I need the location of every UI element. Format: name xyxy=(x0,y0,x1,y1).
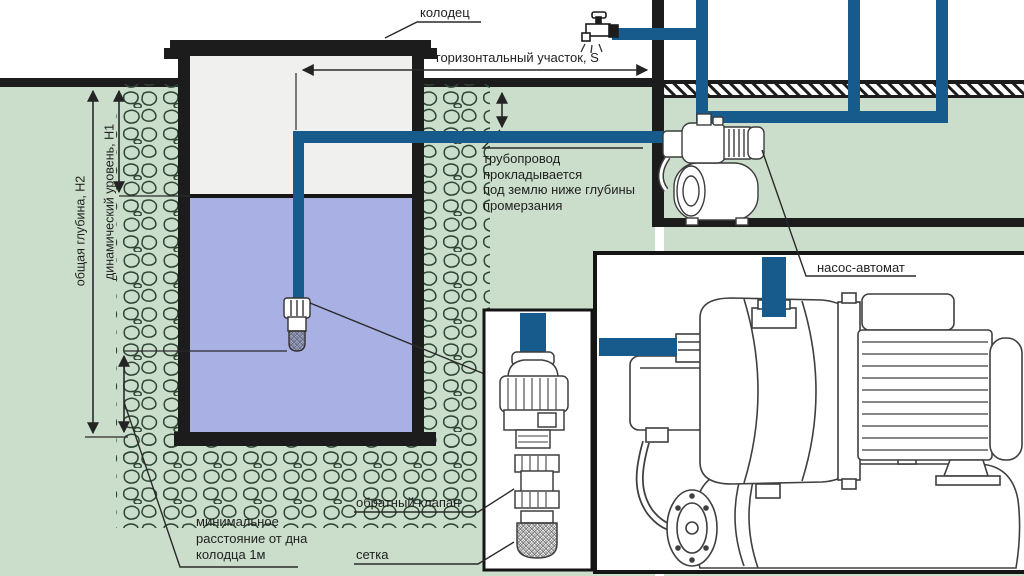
min-distance-line1: минимальное xyxy=(196,514,307,531)
label-pump-station: насос-автомат xyxy=(817,260,905,276)
pipeline-note-line4: промерзания xyxy=(483,198,635,214)
pipe-basement-header xyxy=(696,111,948,123)
pipe-riser-1 xyxy=(696,0,708,123)
pipe-buried-horizontal xyxy=(293,131,668,143)
label-min-distance: минимальное расстояние от дна колодца 1м xyxy=(196,514,307,564)
label-check-valve: обратный клапан xyxy=(356,495,460,511)
pipe-detail-outlet-stub xyxy=(762,257,786,317)
pump-station-large xyxy=(630,293,1022,568)
label-dynamic-level: динамический уровень, Н1 xyxy=(102,124,118,280)
label-pipeline-note: трубопровод прокладывается под землю ниж… xyxy=(483,151,635,213)
pipeline-note-line1: трубопровод xyxy=(483,151,635,167)
well-wall-right xyxy=(412,54,424,446)
check-valve-drawing xyxy=(515,455,559,508)
well-water-supply-diagram: колодец горизонтальный участок, S трубоп… xyxy=(0,0,1024,576)
pipeline-note-line3: под землю ниже глубины xyxy=(483,182,635,198)
min-distance-line2: расстояние от дна xyxy=(196,531,307,548)
leader-well-label xyxy=(385,22,481,38)
well-wall-left xyxy=(178,54,190,446)
stones-bottom xyxy=(116,444,508,528)
pipe-riser-3 xyxy=(936,0,948,117)
pipe-riser-2 xyxy=(848,0,860,117)
floor-hatch xyxy=(664,80,1024,98)
well-floor xyxy=(174,432,436,446)
pipeline-note-line2: прокладывается xyxy=(483,167,635,183)
label-horizontal-section: горизонтальный участок, S xyxy=(436,50,599,66)
label-mesh: сетка xyxy=(356,547,388,563)
mesh-strainer-drawing xyxy=(517,511,557,558)
min-distance-line3: колодца 1м xyxy=(196,547,307,564)
pipe-faucet-line xyxy=(612,28,706,40)
well-cap xyxy=(170,40,431,56)
stones-left xyxy=(116,84,178,456)
diagram-linework xyxy=(0,0,1024,576)
pipe-well-drop xyxy=(293,131,304,300)
pipe-detail-inlet-stub xyxy=(599,338,677,356)
label-total-depth: общая глубина, Н2 xyxy=(73,176,89,286)
label-well: колодец xyxy=(420,5,470,21)
faucet xyxy=(581,12,618,53)
